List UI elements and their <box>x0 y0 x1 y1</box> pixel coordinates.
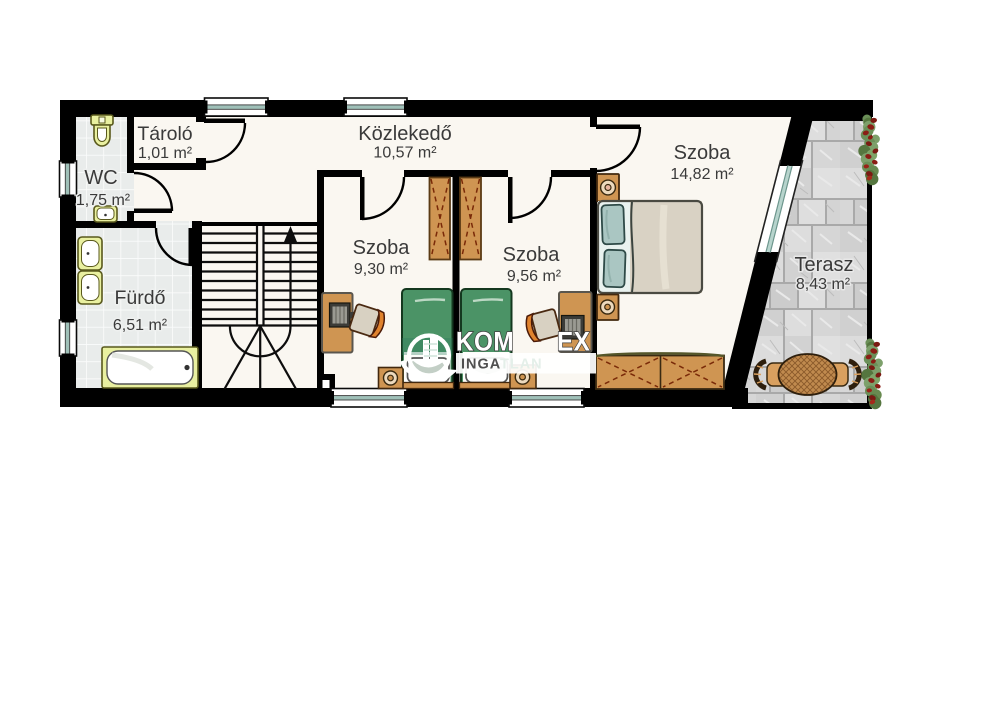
svg-text:TLAN: TLAN <box>500 357 543 373</box>
svg-text:1,75 m²: 1,75 m² <box>76 192 131 209</box>
svg-text:Közlekedő: Közlekedő <box>358 123 451 145</box>
svg-text:Terasz: Terasz <box>795 254 854 276</box>
svg-text:1,01 m²: 1,01 m² <box>138 145 193 162</box>
svg-text:6,51 m²: 6,51 m² <box>113 317 168 334</box>
svg-text:9,56 m²: 9,56 m² <box>507 268 562 285</box>
svg-text:Szoba: Szoba <box>353 237 411 259</box>
svg-text:KOM: KOM <box>456 327 514 356</box>
svg-text:10,57 m²: 10,57 m² <box>373 145 437 162</box>
svg-text:WC: WC <box>84 167 117 189</box>
svg-text:Fürdő: Fürdő <box>115 287 166 309</box>
svg-text:9,30 m²: 9,30 m² <box>354 261 409 278</box>
svg-text:Szoba: Szoba <box>503 244 561 266</box>
svg-text:14,82 m²: 14,82 m² <box>670 166 734 183</box>
svg-text:8,43 m²: 8,43 m² <box>796 276 851 293</box>
svg-text:Tároló: Tároló <box>137 123 192 145</box>
svg-text:INGA: INGA <box>461 357 501 373</box>
svg-text:EX: EX <box>557 327 590 356</box>
svg-text:Szoba: Szoba <box>674 142 732 164</box>
